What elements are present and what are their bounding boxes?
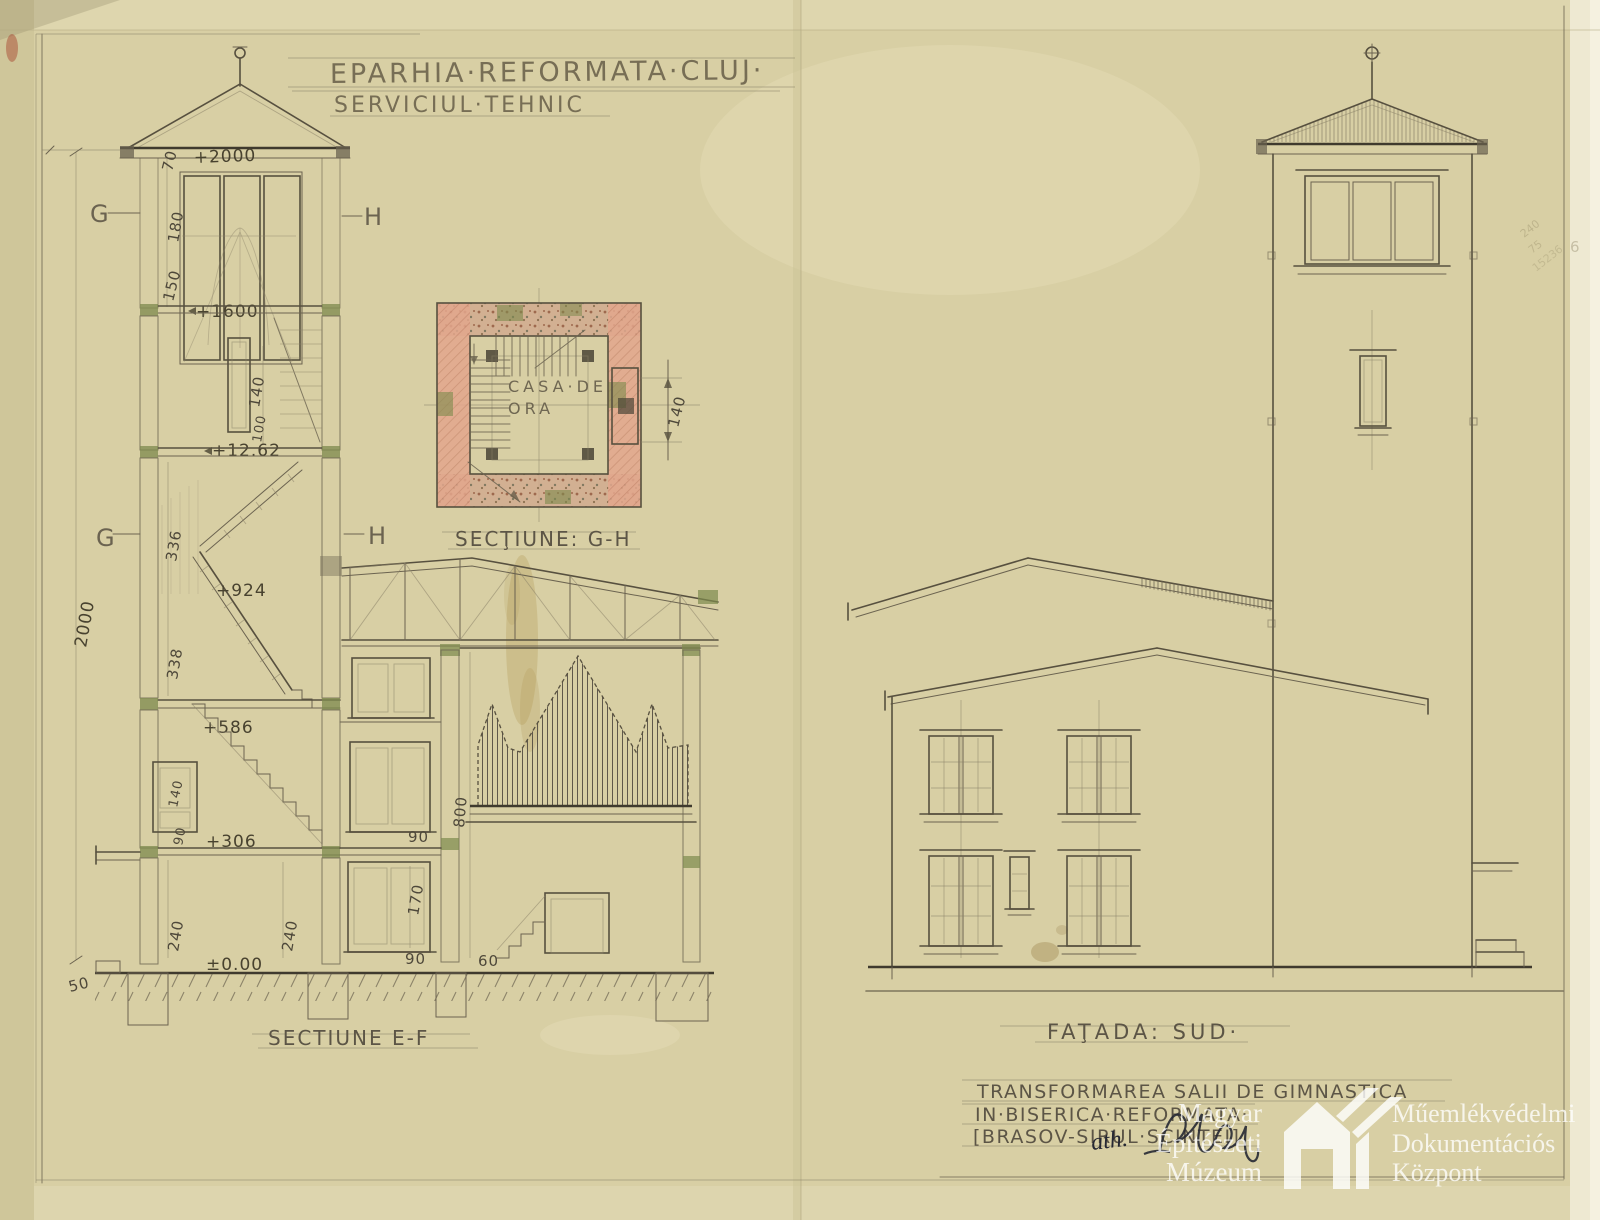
watermark-right-line1: Műemlékvédelmi <box>1392 1099 1575 1128</box>
section-ef-label: SECTIUNE E-F <box>268 1026 429 1050</box>
margin-note-4: 6 <box>1570 238 1580 256</box>
facade-sud-label: FAŢADA: SUD· <box>1047 1020 1240 1044</box>
watermark-left-line2: Építészeti <box>1156 1128 1262 1158</box>
organization-title: EPARHIA·REFORMATA·CLUJ· <box>330 55 765 90</box>
watermark-left-line1: Magyar <box>1178 1098 1262 1128</box>
watermark-left-line3: Múzeum <box>1166 1157 1262 1187</box>
level-plus306: +306 <box>206 832 257 852</box>
paper-background <box>0 0 1600 1220</box>
watermark-right-line3: Központ <box>1392 1158 1482 1187</box>
plan-room-name-line2: ORA <box>508 399 554 418</box>
watermark-right-line2: Dokumentációs <box>1392 1129 1555 1158</box>
plan-room-name-line1: CASA·DE <box>508 377 607 396</box>
section-mark-g-lower: G <box>96 524 115 552</box>
dim-60: 60 <box>478 952 499 970</box>
dim-800: 800 <box>450 795 471 828</box>
section-mark-g-upper: G <box>90 200 109 228</box>
level-plus2000: +2000 <box>193 146 256 168</box>
section-mark-h-lower: H <box>368 522 386 550</box>
level-plus586: +586 <box>203 718 254 738</box>
level-plus1262: +12.62 <box>212 441 281 461</box>
department-title: SERVICIUL·TEHNIC <box>334 93 585 118</box>
architectural-drawing: EPARHIA·REFORMATA·CLUJ· SERVICIUL·TEHNIC <box>0 0 1600 1220</box>
dim-90b: 90 <box>405 950 426 968</box>
dim-90a: 90 <box>408 828 429 846</box>
level-plus924: +924 <box>216 581 267 601</box>
fold-crease <box>793 0 801 1220</box>
drawing-sheet: EPARHIA·REFORMATA·CLUJ· SERVICIUL·TEHNIC <box>0 0 1600 1220</box>
section-mark-h-upper: H <box>364 203 382 231</box>
plan-gh-label: SECŢIUNE: G-H <box>455 527 632 551</box>
level-plus1600: +1600 <box>196 302 259 322</box>
svg-text:ath.: ath. <box>1090 1126 1130 1156</box>
